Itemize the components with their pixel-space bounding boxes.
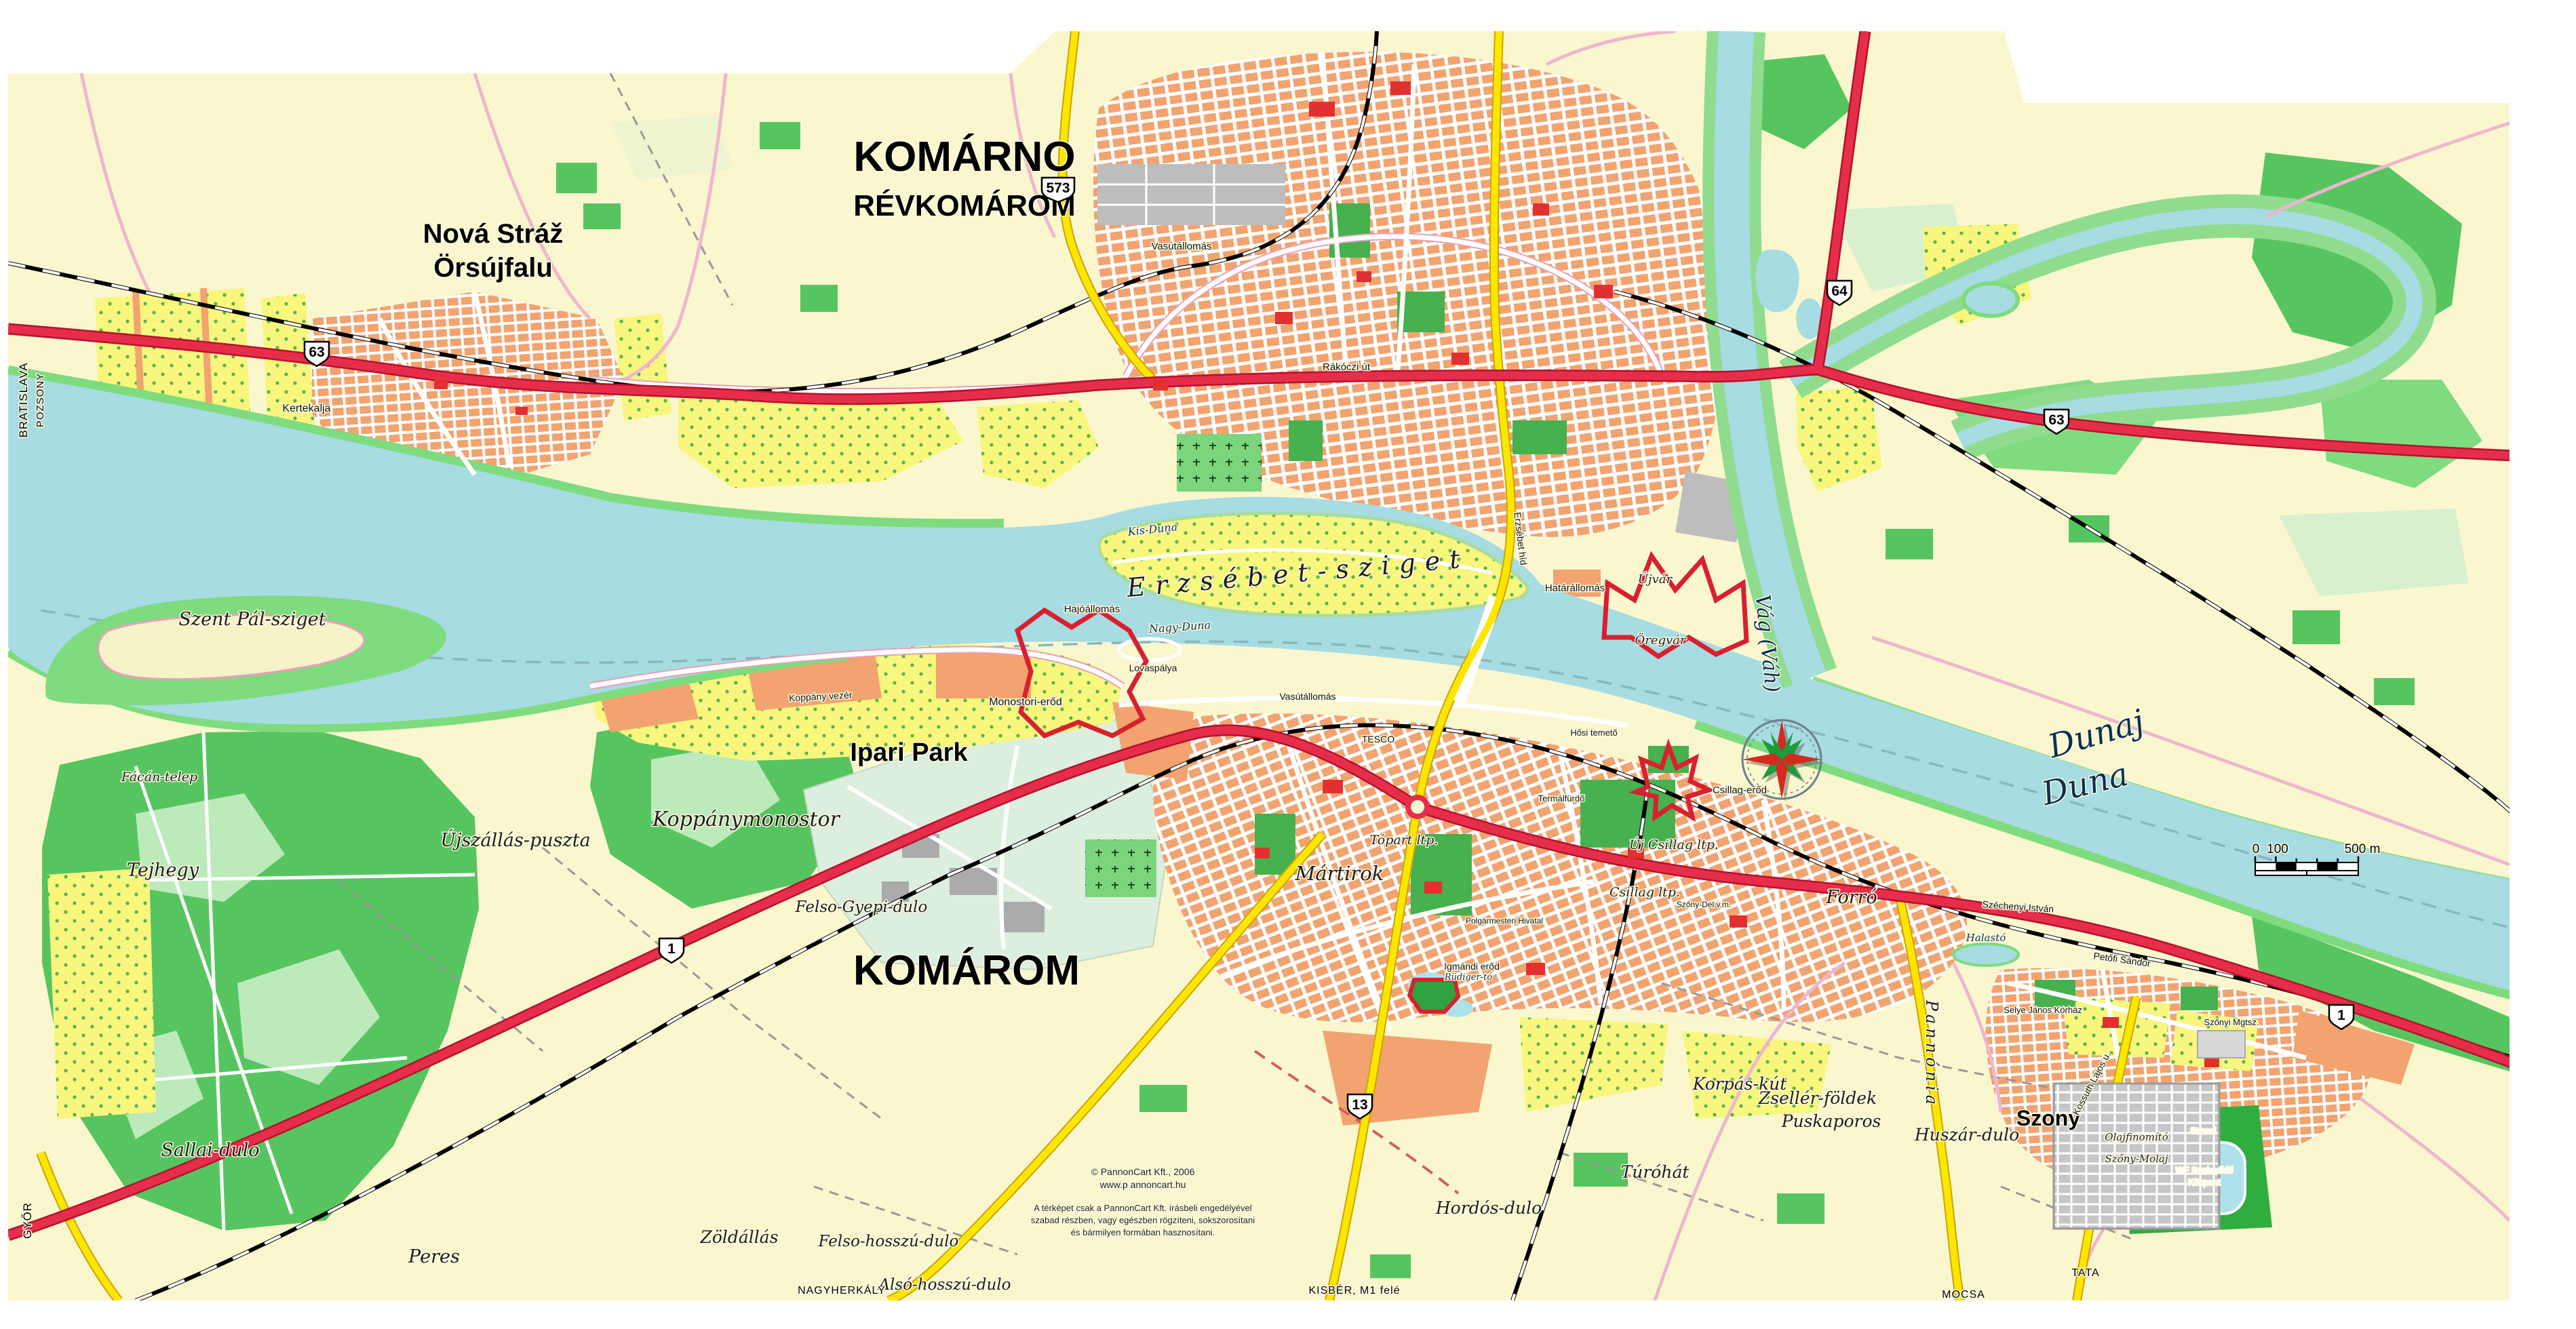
map-label-100: 100 xyxy=(2267,842,2288,856)
map-label-kopp-nymonostor: Koppánymonostor xyxy=(652,808,841,831)
map-label-haj-llom-s: Hajóállomás xyxy=(1064,603,1120,615)
map-label-nagyherk-ly: NAGYHERKÁLY xyxy=(798,1284,886,1296)
map-label-pozsony: POZSONY xyxy=(35,373,46,427)
map-label-t-r-h-t: Túróhát xyxy=(1621,1162,1690,1182)
map-label-wf-szabadid: WF Szabadidő xyxy=(2175,1165,2233,1175)
map-label-pann-nia: Pannónia xyxy=(1922,999,1941,1109)
map-label-vas-t-llom-s: Vasútállomás xyxy=(1152,241,1212,252)
map-label-www-p-annoncart-hu: www.p annoncart.hu xyxy=(1099,1179,1186,1190)
roundabout xyxy=(1408,797,1427,816)
map-label-igm-ndi-er-d: Igmándi erőd xyxy=(1444,961,1500,972)
map-label-sallai-dulo: Sallai-dulo xyxy=(161,1140,259,1161)
map-label-500-m: 500 m xyxy=(2345,842,2381,856)
map-label-selye-j-nos-k-rh-z: Selye János Kórház xyxy=(2004,1005,2082,1015)
map-label-csillag-er-d: Csillag-erőd xyxy=(1713,785,1767,796)
svg-text:64: 64 xyxy=(1831,283,1848,299)
map-label-puskaporos: Puskaporos xyxy=(1781,1111,1881,1131)
map-label-tejhegy: Tejhegy xyxy=(127,860,199,881)
map-label-term-lf-rd: Termálfürdő xyxy=(1538,793,1585,804)
map-label-forr: Forró xyxy=(1825,887,1877,908)
map-label-m-rtirok: Mártirok xyxy=(1295,862,1384,885)
map-label-kom-rno: KOMÁRNO xyxy=(853,134,1075,180)
map-label-szent-p-l-sziget: Szent Pál-sziget xyxy=(178,609,326,630)
map-label-kom-rom: KOMÁROM xyxy=(853,947,1080,994)
map-label-a-t-rk-pet-csak-a-pannoncart-kft-r-sbeli-enged-ly-vel: A térképet csak a PannonCart Kft. írásbe… xyxy=(1034,1203,1252,1213)
map-label-szabad-r-szben-vagy-eg-szben-r-gz-teni-sokszoros-tani: szabad részben, vagy egészben rögzíteni,… xyxy=(1031,1215,1255,1225)
svg-text:1: 1 xyxy=(667,941,676,957)
igmandi-fort xyxy=(1409,980,1458,1012)
map-label-sz-nyi-mgtsz: Szőnyi Mgtsz. xyxy=(2204,1017,2259,1027)
map-label-lovasp-lya: Lovaspálya xyxy=(1129,662,1177,673)
map-label-felso-gyepi-dulo: Felso-Gyepi-dulo xyxy=(795,898,928,916)
map-label-peres: Peres xyxy=(408,1246,460,1267)
map-label-0: 0 xyxy=(2252,842,2260,856)
map-label-k-zpont: Központ xyxy=(2188,1177,2221,1187)
map-label-hat-r-llom-s: Határállomás xyxy=(1545,582,1605,594)
map-label-f-c-n-telep: Fácán-telep xyxy=(121,770,197,785)
svg-text:1: 1 xyxy=(2337,1008,2345,1023)
map-label-polg-rmesteri-hivatal: Polgármesteri Hivatal xyxy=(1466,916,1543,926)
map-label-csillag-ltp: Csillag ltp. xyxy=(1609,885,1680,900)
map-label-felso-hossz-dulo: Felso-hosszú-dulo xyxy=(818,1233,959,1250)
map-label-sz-ny-d-l-v-m: Szőny-Dél v.m. xyxy=(1677,900,1731,909)
map-label-z-ld-ll-s: Zöldállás xyxy=(699,1227,778,1247)
map-label-vas-t-llom-s: Vasútállomás xyxy=(1279,691,1335,702)
map-label-bratislava: BRATISLAVA xyxy=(17,362,30,437)
map-label-strand: Strand xyxy=(2190,1126,2216,1136)
map-label-jv-r: Újvár xyxy=(1638,571,1673,587)
map-label-nov-str: Nová Stráž xyxy=(423,219,564,249)
map-label-als-hossz-dulo: Alsó-hosszú-dulo xyxy=(877,1276,1011,1294)
map-label-s-b-rmilyen-form-ban-hasznos-tani: és bármilyen formában hasznosítani. xyxy=(1071,1227,1215,1237)
map-label-husz-r-dulo: Huszár-dulo xyxy=(1914,1125,2019,1145)
map-label-sz-ny-molaj: Szőny-Molaj xyxy=(2105,1153,2168,1165)
map-label-kisb-r-m1-fel: KISBÉR, M1 felé xyxy=(1308,1284,1400,1296)
map-label-hord-s-dulo: Hordós-dulo xyxy=(1435,1198,1542,1218)
svg-text:13: 13 xyxy=(1352,1097,1367,1113)
map-label-regv-r: Öregvár xyxy=(1635,632,1686,648)
map-label-olajfinom-t: Olajfinomító xyxy=(2105,1131,2168,1143)
map-label-h-si-temet: Hősi temető xyxy=(1570,728,1617,738)
map-canvas[interactable]: KOMÁRNORÉVKOMÁROMKOMÁROMNová StrážÖrsújf… xyxy=(0,0,2576,1329)
map-label-rs-jfalu: Örsújfalu xyxy=(433,252,553,283)
map-label-tesco: TESCO xyxy=(1362,734,1394,745)
svg-text:63: 63 xyxy=(2048,412,2064,428)
map-label-kertekalja: Kertekalja xyxy=(282,403,330,414)
map-label-tata: TATA xyxy=(2071,1267,2099,1279)
svg-text:573: 573 xyxy=(1046,180,1070,196)
map-label-mocsa: MOCSA xyxy=(1942,1289,1985,1301)
map-label-gy-r: GYŐR xyxy=(21,1202,34,1239)
map-label-t-part-ltp: Tópart ltp. xyxy=(1370,833,1439,848)
map-label-monostori-er-d: Monostori-erőd xyxy=(989,696,1062,708)
map-label-r-diger-t: Rüdiger-tó xyxy=(1444,972,1492,983)
svg-text:63: 63 xyxy=(309,344,324,360)
map-page: KOMÁRNORÉVKOMÁROMKOMÁROMNová StrážÖrsújf… xyxy=(0,0,2576,1329)
map-label-korp-s-k-t: Korpás-kút xyxy=(1692,1074,1787,1094)
map-label-ipari-park: Ipari Park xyxy=(850,738,968,767)
map-label-jsz-ll-s-puszta: Újszállás-puszta xyxy=(440,828,590,851)
map-label-r-k-czi-t: Rákóczi út xyxy=(1323,361,1371,373)
map-label-pannoncart-kft-2006: © PannonCart Kft., 2006 xyxy=(1091,1166,1195,1177)
map-label-j-csillag-ltp: Új Csillag ltp. xyxy=(1629,837,1719,852)
map-label-halast: Halastó xyxy=(1966,932,2006,944)
